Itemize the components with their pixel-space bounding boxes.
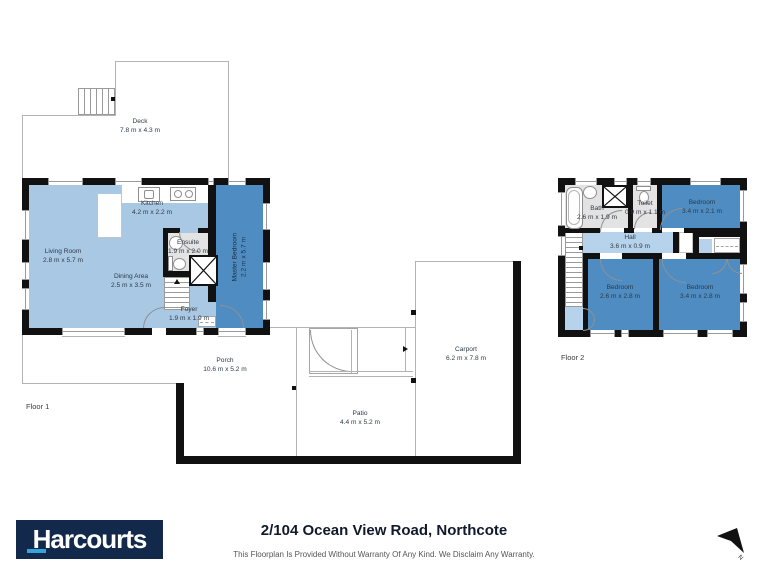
patio-outline <box>296 328 297 457</box>
floor2-label: Floor 2 <box>561 353 584 362</box>
window <box>218 328 246 335</box>
wall-bedroom-divider <box>653 259 659 330</box>
room-label-living-room: Living Room2.8 m x 5.7 m <box>43 247 83 265</box>
deck-outline <box>22 115 23 178</box>
disclaimer-text: This Floorplan Is Provided Without Warra… <box>0 550 768 559</box>
room-label-carport: Carport6.2 m x 7.8 m <box>446 345 486 363</box>
room-label-bedroom-right: Bedroom3.4 m x 2.8 m <box>680 283 720 301</box>
yard-post <box>292 386 296 390</box>
porch-outline <box>22 335 23 384</box>
window <box>663 330 698 337</box>
room-label-foyer: Foyer1.9 m x 1.9 m <box>169 305 209 323</box>
wardrobe <box>714 238 740 253</box>
window <box>263 203 270 230</box>
yard-post <box>411 310 416 315</box>
window <box>263 262 270 290</box>
room-label-bedroom-left: Bedroom2.6 m x 2.8 m <box>600 283 640 301</box>
yard-wall <box>176 456 521 464</box>
yard-post <box>411 378 416 383</box>
room-label-hall: Hall3.6 m x 0.9 m <box>610 233 650 251</box>
patio-step-line <box>309 376 413 377</box>
stairs-marker <box>111 97 115 101</box>
window <box>62 328 125 335</box>
window <box>690 178 721 185</box>
page-title: 2/104 Ocean View Road, Northcote <box>0 522 768 539</box>
deck-outline <box>115 61 116 115</box>
window <box>22 210 29 240</box>
door-threshold <box>62 336 125 337</box>
window <box>740 190 747 222</box>
stairs-direction-arrow <box>174 279 180 284</box>
void-box <box>189 255 218 286</box>
window <box>575 178 597 185</box>
wall-ensuite <box>198 228 216 233</box>
room-label-kitchen: Kitchen4.2 m x 2.2 m <box>132 199 172 217</box>
stairs-direction-arrow <box>403 346 408 352</box>
wall-closet <box>699 232 740 237</box>
window <box>208 178 214 185</box>
window <box>558 192 565 226</box>
wall <box>22 178 29 335</box>
bath-sink-icon <box>583 186 597 199</box>
room-label-dining-area: Dining Area2.5 m x 3.5 m <box>111 272 151 290</box>
closet-blue <box>699 239 712 253</box>
wall-closet <box>673 232 679 253</box>
closet-bottom-left <box>565 307 583 330</box>
door-opening <box>152 328 166 335</box>
stove-burner <box>174 190 182 198</box>
floor2-stairs <box>565 232 583 307</box>
wall-ensuite <box>163 271 191 277</box>
room-label-deck: Deck7.8 m x 4.3 m <box>120 117 160 135</box>
window <box>740 302 747 322</box>
room-label-bedroom-top: Bedroom3.4 m x 2.1 m <box>682 198 722 216</box>
carport-outline <box>415 261 520 262</box>
yard-wall <box>176 383 184 464</box>
room-label-porch: Porch10.6 m x 5.2 m <box>203 356 247 374</box>
stairs-marker <box>579 246 583 250</box>
carport-outline <box>415 261 416 457</box>
deck-outline <box>115 61 229 62</box>
window <box>228 178 246 185</box>
window <box>558 236 565 256</box>
room-label-patio: Patio4.4 m x 5.2 m <box>340 409 380 427</box>
window <box>707 330 733 337</box>
ensuite-toilet-bowl <box>173 258 186 270</box>
room-label-master-bedroom: Master Bedroom2.2 m x 5.7 m <box>216 185 263 328</box>
floorplan-page: Deck7.8 m x 4.3 m Living Room2.8 m x 5.7… <box>0 0 768 576</box>
floor1-label: Floor 1 <box>26 402 49 411</box>
north-arrow-icon <box>705 520 751 566</box>
window <box>22 262 29 280</box>
carport-wall <box>513 261 521 464</box>
window <box>637 178 651 185</box>
window <box>48 178 83 185</box>
room-label-toilet: Toilet0.9 m x 1.1 m <box>625 199 665 217</box>
window <box>590 330 615 337</box>
deck-outline <box>22 115 116 116</box>
room-label-bath: Bath2.6 m x 1.9 m <box>577 204 617 222</box>
window <box>621 330 629 337</box>
window <box>263 300 270 320</box>
window <box>196 328 204 335</box>
deck-outline <box>228 61 229 178</box>
door-threshold <box>218 336 246 337</box>
hall-closet <box>679 232 693 253</box>
kitchen-sink-basin <box>144 190 154 199</box>
window <box>22 288 29 310</box>
porch-outline <box>22 383 181 384</box>
stove-burner <box>185 190 193 198</box>
room-label-ensuite: Ensuite1.9 m x 2.0 m <box>168 238 208 256</box>
window <box>614 178 627 185</box>
deck-stairs <box>78 88 115 115</box>
window <box>115 178 142 185</box>
kitchen-cupboard <box>98 194 122 238</box>
patio-step-line <box>309 371 413 372</box>
